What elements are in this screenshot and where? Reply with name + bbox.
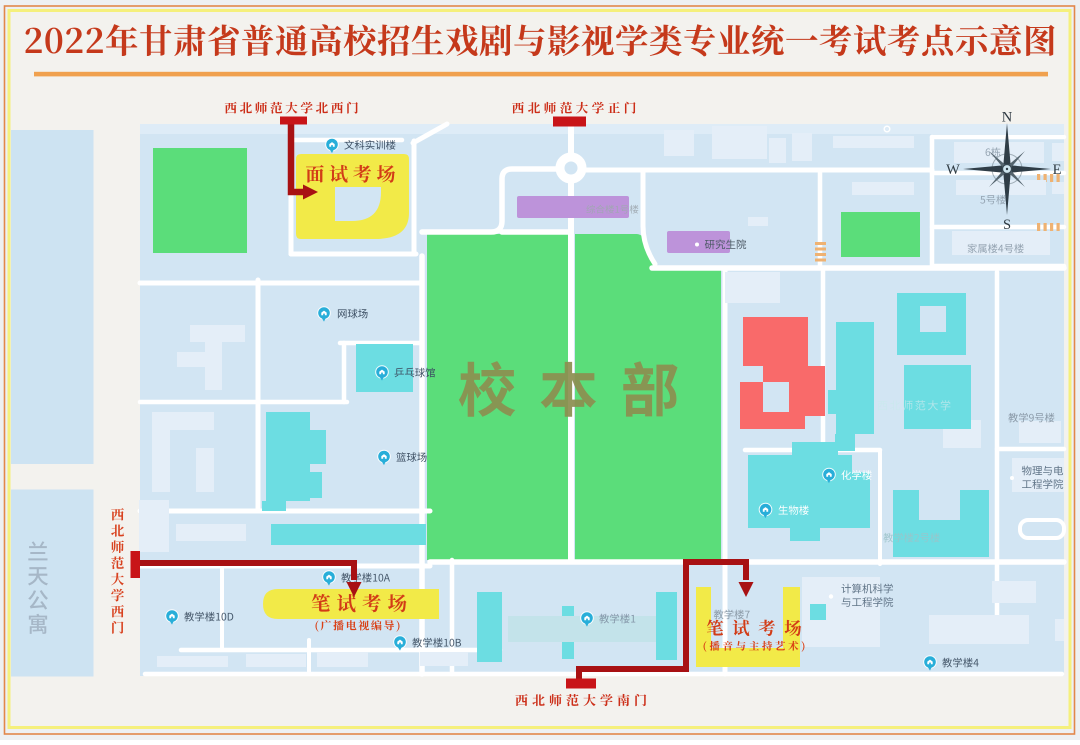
svg-text:N: N: [1002, 110, 1013, 126]
svg-text:S: S: [1003, 217, 1011, 233]
svg-text:E: E: [1053, 162, 1062, 178]
svg-text:W: W: [946, 162, 960, 178]
